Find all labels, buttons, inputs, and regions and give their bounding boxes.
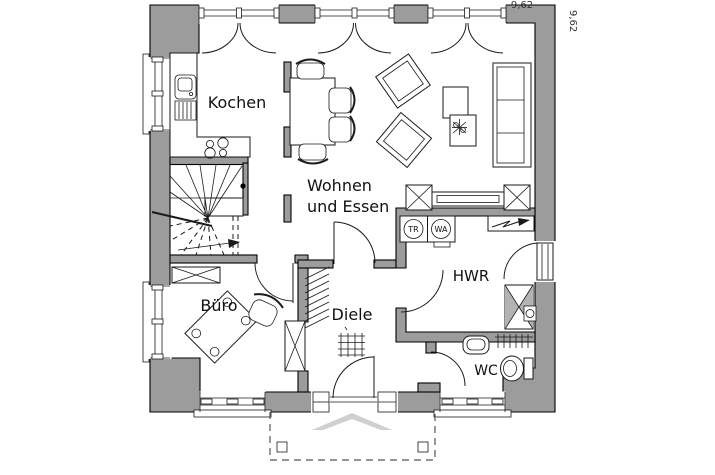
wall-wc-west-stub: [426, 342, 436, 353]
dimension-right: 9,62: [567, 10, 578, 32]
wc-sink: [463, 336, 489, 354]
entrance-porch: [270, 412, 435, 460]
room-label-hwr: HWR: [453, 267, 490, 285]
dimension-top: 9,62: [511, 0, 533, 11]
dining-table: [290, 78, 335, 145]
armchair-1: [376, 54, 431, 108]
wc-window: [434, 392, 511, 418]
armchair-2: [376, 113, 431, 168]
dining-chair-bottom: [298, 144, 328, 164]
kitchen-drainer: [175, 101, 196, 120]
canopy-symbol: [312, 413, 392, 430]
side-entrance-door: [504, 241, 556, 282]
window-sill: [194, 410, 271, 417]
pillar-3: [284, 195, 291, 222]
office-window-bottom: [194, 392, 271, 418]
floor-plan-drawing: TR WA: [0, 0, 715, 475]
kitchen-sink: [175, 75, 196, 120]
room-label-kochen: Kochen: [208, 93, 266, 112]
doormat-grid: [338, 327, 365, 357]
office-cabinet: [172, 267, 220, 283]
room-label-wc: WC: [474, 363, 498, 379]
floor-plan-canvas: TR WA: [0, 0, 715, 475]
sofa: [493, 63, 531, 167]
wall-office-top: [170, 255, 257, 263]
dining-chair-right-2: [329, 116, 355, 142]
toilet-tank: [524, 358, 533, 379]
dining-set: [290, 60, 355, 164]
dining-chair-top: [296, 60, 325, 80]
window-sill: [434, 410, 511, 417]
door-frame: [537, 243, 553, 280]
office-window-left: [143, 282, 172, 362]
washer-dryer-unit: TR WA: [400, 216, 455, 247]
washer-label: WA: [435, 225, 448, 234]
window-sill: [143, 282, 149, 362]
door-living-hall: [334, 222, 375, 264]
door-office: [255, 263, 293, 303]
hall-wardrobe-cabinet: [285, 321, 305, 371]
kitchen-window: [143, 54, 172, 134]
window-sill: [143, 54, 149, 134]
entrance-arrow-box: [488, 216, 534, 231]
installation-shaft: [505, 285, 536, 329]
door-wc: [431, 352, 465, 386]
stair-direction-line: [178, 243, 230, 250]
toilet: [501, 356, 534, 381]
door-hwr: [401, 270, 443, 312]
room-label-wohnen-line1: Wohnen: [307, 176, 372, 195]
room-label-wohnen-line2: und Essen: [307, 197, 389, 216]
dryer-label: TR: [407, 225, 419, 234]
wall-hall-living-left: [298, 260, 333, 268]
stair-newel-post: [240, 183, 245, 188]
porch-post-left: [277, 442, 287, 452]
wall-hall-living-right: [374, 260, 396, 268]
wall-stair-spine: [243, 163, 248, 215]
entrance-door-opening: [311, 392, 398, 413]
coffee-tables: [443, 87, 476, 146]
dining-chair-right-1: [329, 87, 355, 113]
coat-rack-hatching: [305, 267, 329, 328]
terrace-door-3: [428, 4, 506, 53]
terrace-door-2: [315, 4, 394, 53]
room-label-diele: Diele: [332, 305, 373, 324]
porch-post-right: [418, 442, 428, 452]
wall-office-hall-lower: [298, 371, 308, 392]
room-label-buero: Büro: [200, 296, 237, 315]
wall-wc-jamb: [418, 383, 440, 392]
lowboard: [406, 185, 530, 210]
terrace-door-1: [199, 4, 279, 53]
